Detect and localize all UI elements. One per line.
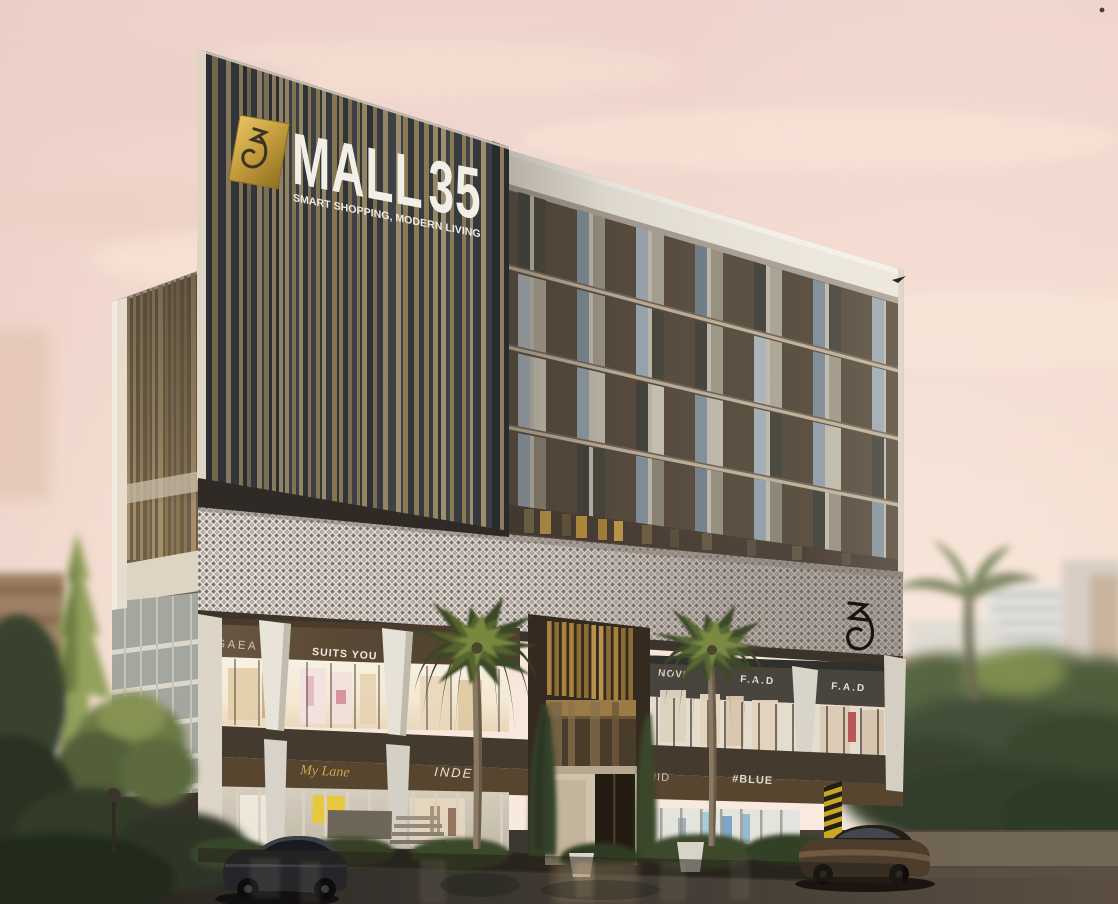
svg-text:#BLUE: #BLUE: [732, 773, 774, 787]
svg-text:INDE: INDE: [434, 764, 474, 781]
svg-text:My Lane: My Lane: [299, 763, 350, 781]
